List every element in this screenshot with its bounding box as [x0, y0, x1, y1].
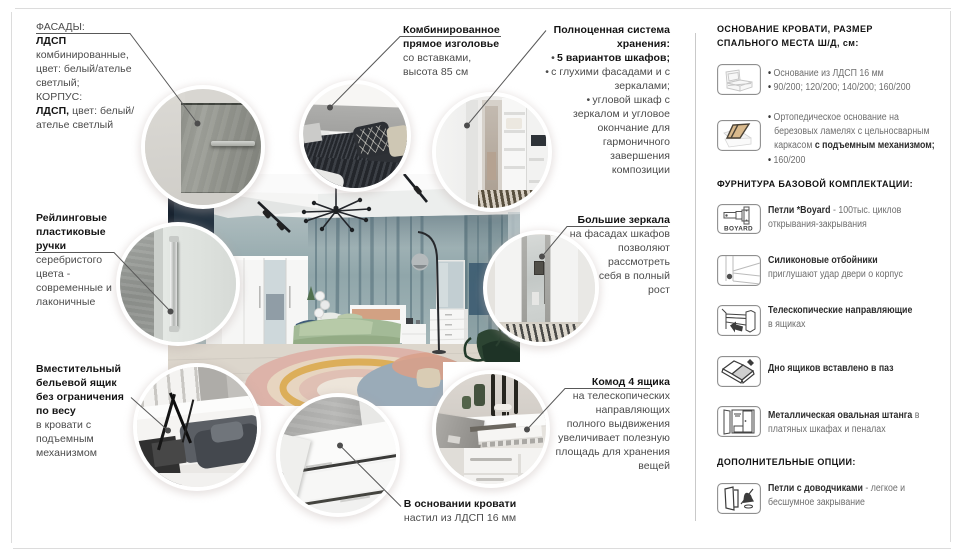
svg-text:BOYARD: BOYARD: [724, 226, 753, 233]
